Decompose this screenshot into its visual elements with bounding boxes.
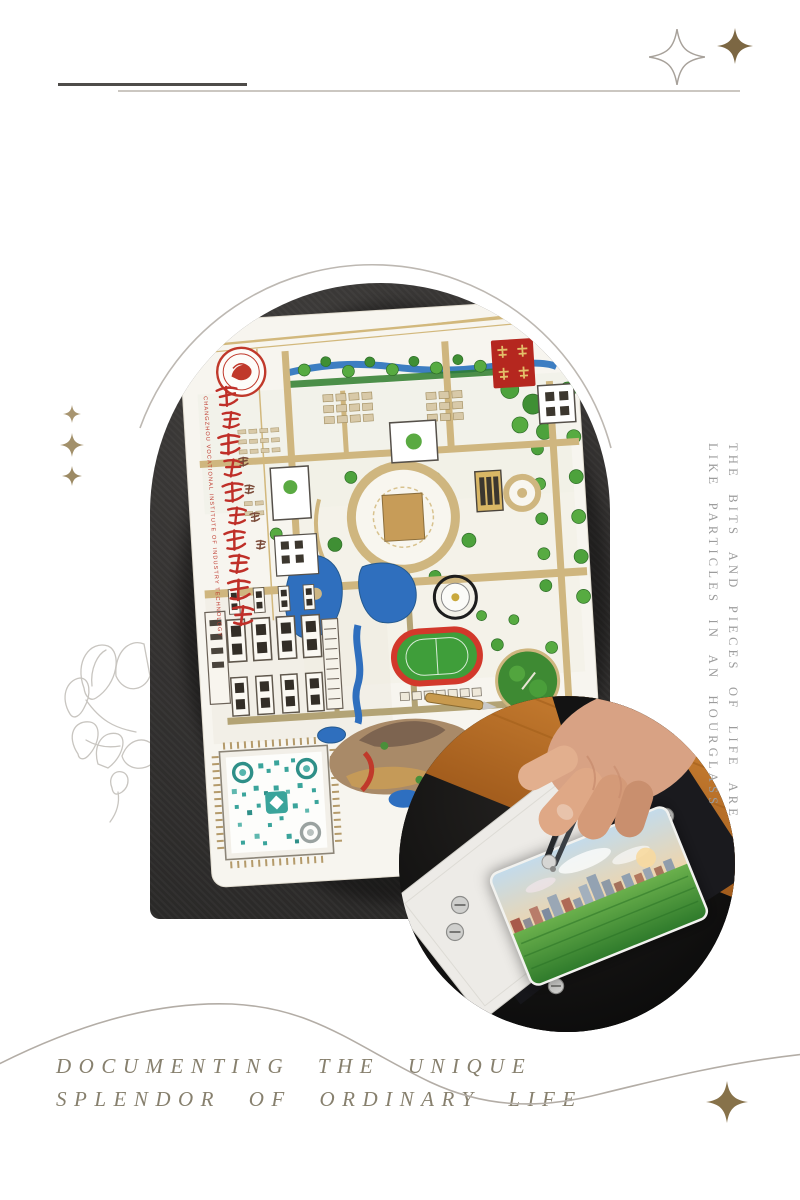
sparkle-outline-icon bbox=[649, 29, 705, 85]
bottom-caption: DOCUMENTING THE UNIQUE SPLENDOR OF ORDIN… bbox=[56, 1050, 583, 1116]
poster-page: { "poster": { "right_caption": { "line1"… bbox=[0, 0, 800, 1200]
top-rule-dark bbox=[58, 83, 247, 86]
school-seal bbox=[491, 338, 536, 388]
vertical-caption-line1: THE BITS AND PIECES OF LIFE ARE bbox=[723, 443, 743, 803]
school-logo bbox=[216, 346, 267, 397]
bottom-caption-line1: DOCUMENTING THE UNIQUE bbox=[56, 1050, 583, 1083]
sparkle-bottom-icon bbox=[706, 1081, 748, 1123]
bottom-caption-line2: SPLENDOR OF ORDINARY LIFE bbox=[56, 1083, 583, 1116]
top-rule-light bbox=[118, 90, 740, 92]
vertical-caption: THE BITS AND PIECES OF LIFE ARE LIKE PAR… bbox=[701, 443, 743, 803]
sparkle-gold-icon bbox=[717, 28, 753, 64]
sparkle-column-icon bbox=[57, 405, 87, 497]
running-track bbox=[392, 628, 481, 685]
vertical-caption-line2: LIKE PARTICLES IN AN HOURGLASS bbox=[703, 443, 723, 803]
campus-qr-chip bbox=[211, 736, 343, 869]
screw-icon bbox=[447, 924, 464, 941]
crafting-photo bbox=[399, 696, 735, 1032]
crafting-illustration bbox=[399, 696, 735, 1032]
screw-icon bbox=[452, 897, 469, 914]
